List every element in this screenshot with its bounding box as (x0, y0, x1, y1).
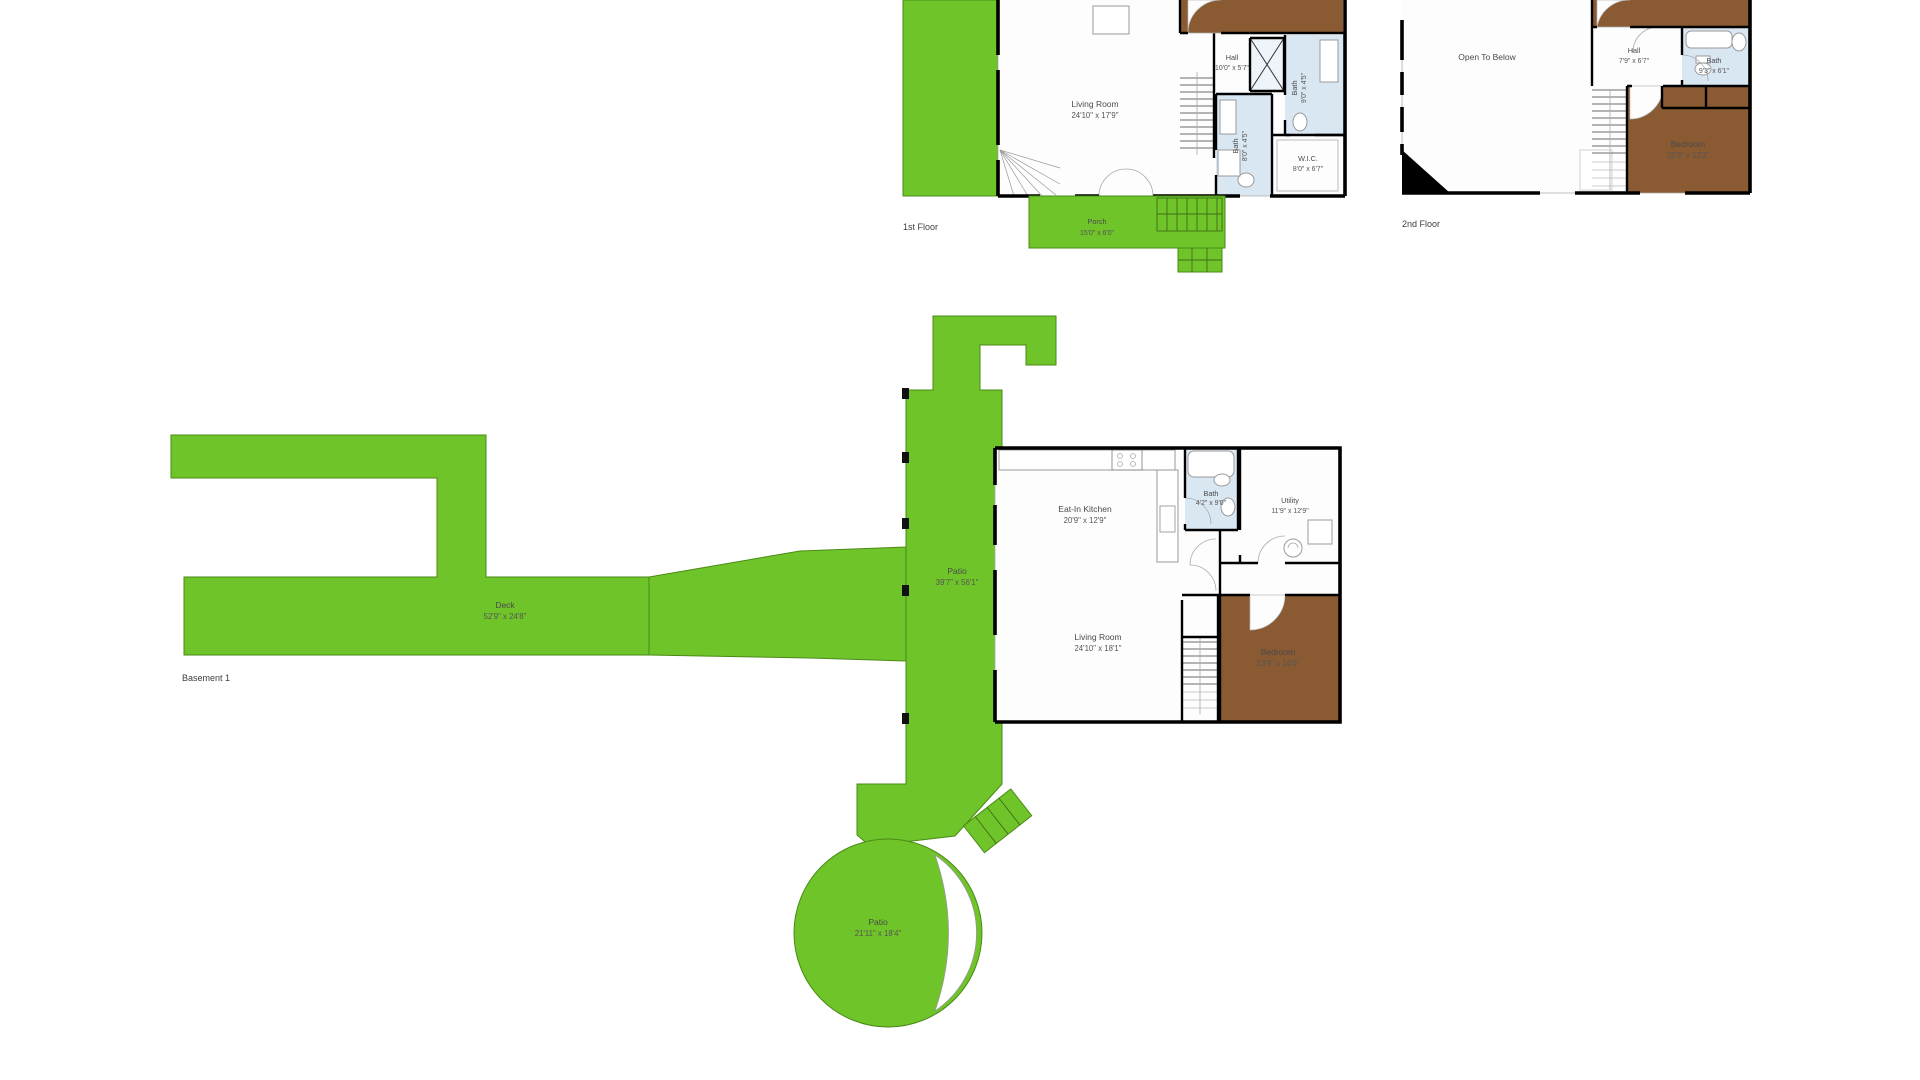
basement-bath-label: Bath (1203, 489, 1218, 498)
utility-label: Utility (1281, 496, 1299, 505)
basement-caption: Basement 1 (182, 673, 230, 683)
first-floor-deck-shape (903, 0, 998, 196)
open-to-below-label: Open To Below (1458, 52, 1516, 62)
porch-shape (1029, 196, 1225, 272)
bath-lower-dims: 8'0" x 4'5" (1242, 130, 1249, 161)
hall-label: Hall (1628, 46, 1641, 55)
patio-strip-dims: 39'7" x 56'1" (936, 578, 979, 587)
kitchen-dims: 20'9" x 12'9" (1064, 516, 1107, 525)
second-floor-plan: Open To Below Hall 7'9" x 6'7" Bath 9'3"… (1402, 0, 1750, 229)
patio-strip-label: Patio (947, 566, 967, 576)
patio-round-label: Patio (868, 917, 888, 927)
walkway-shape (649, 547, 906, 661)
first-floor-bedroom-shape (1180, 0, 1343, 33)
bath-upper-label: Bath (1290, 80, 1299, 95)
porch-label: Porch (1087, 217, 1106, 226)
floor-plan-canvas: Living Room 24'10" x 17'9" Hall 10'0" x … (0, 0, 1920, 1080)
hall-dims: 10'0" x 5'7" (1215, 65, 1250, 72)
bedroom-label: Bedroom (1671, 139, 1706, 149)
basement-plan: Deck 52'9" x 24'8" Patio 39'7" x 56'1" P… (171, 316, 1340, 1027)
porch-dims: 15'0" x 6'0" (1080, 230, 1115, 237)
living-room-label: Living Room (1071, 99, 1118, 109)
second-floor-bedroom-top-shape (1592, 0, 1750, 27)
wic-label: W.I.C. (1298, 154, 1318, 163)
hall-dims: 7'9" x 6'7" (1619, 58, 1650, 65)
deck-shape (171, 435, 649, 655)
living-room-dims: 24'10" x 17'9" (1071, 111, 1118, 120)
bath-dims: 9'3" x 6'1" (1699, 68, 1730, 75)
basement-living-label: Living Room (1074, 632, 1121, 642)
second-floor-caption: 2nd Floor (1402, 219, 1440, 229)
first-floor-caption: 1st Floor (903, 222, 938, 232)
utility-dims: 11'9" x 12'9" (1271, 508, 1309, 515)
hall-label: Hall (1226, 53, 1239, 62)
basement-bedroom-label: Bedroom (1261, 647, 1296, 657)
basement-living-dims: 24'10" x 18'1" (1074, 644, 1121, 653)
deck-dims: 52'9" x 24'8" (484, 612, 527, 621)
wic-dims: 8'0" x 6'7" (1293, 166, 1324, 173)
bedroom-dims: 15'3" x 12'3" (1667, 151, 1710, 160)
basement-bath-dims: 4'2" x 9'0" (1196, 500, 1227, 507)
kitchen-label: Eat-In Kitchen (1058, 504, 1112, 514)
bath-label: Bath (1706, 56, 1721, 65)
deck-label: Deck (495, 600, 515, 610)
bath-upper-dims: 9'0" x 4'5" (1301, 72, 1308, 103)
first-floor-plan: Living Room 24'10" x 17'9" Hall 10'0" x … (903, 0, 1345, 272)
patio-round-dims: 21'11" x 18'4" (855, 929, 902, 938)
basement-bedroom-dims: 13'9" x 14'0" (1257, 659, 1300, 668)
bath-lower-label: Bath (1231, 138, 1240, 153)
